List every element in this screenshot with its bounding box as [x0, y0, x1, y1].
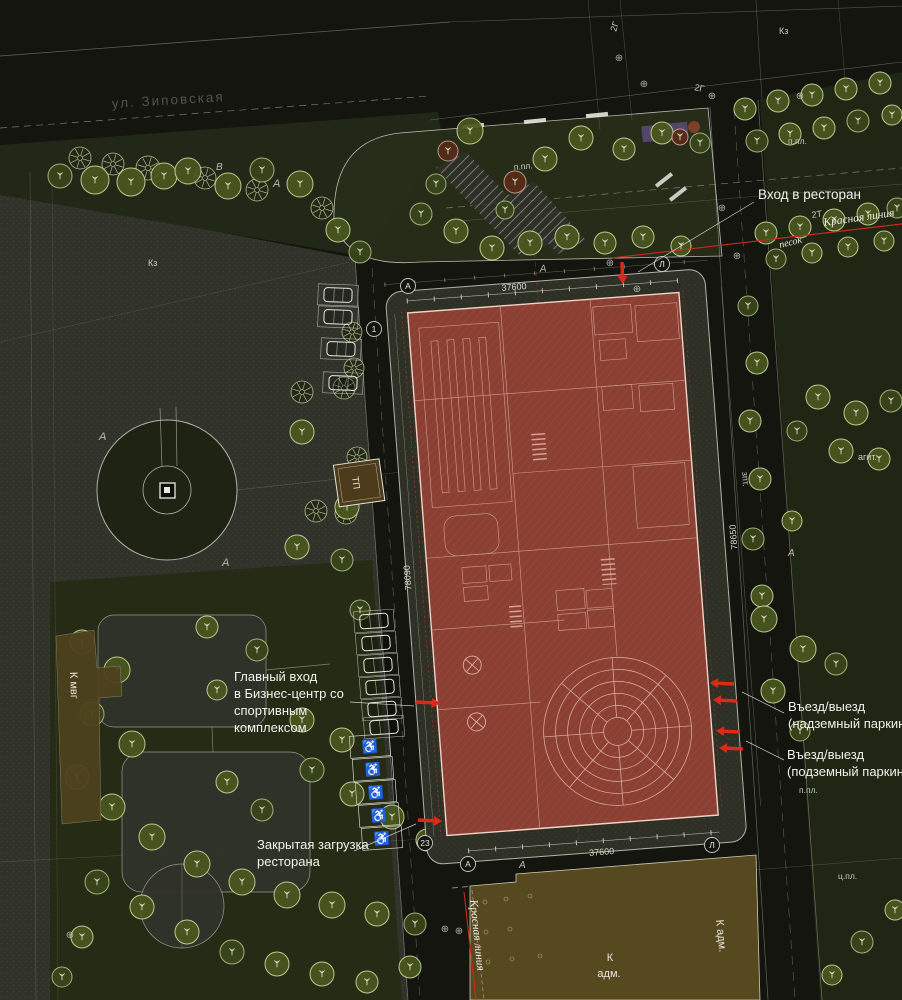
tree-icon: [117, 168, 145, 196]
tree-icon: [742, 528, 764, 550]
tree-icon: [287, 171, 313, 197]
tree-icon: [594, 232, 616, 254]
business-center-building: 37600 37600 78090 78650: [379, 239, 764, 870]
dimension-left: 78090: [402, 565, 414, 591]
tree-icon: [825, 653, 847, 675]
tree-icon: [851, 931, 873, 953]
survey-marker-icon: ⊕: [718, 203, 726, 214]
callout-loading-1: Закрытая загрузка: [257, 837, 369, 852]
svg-text:1: 1: [372, 324, 377, 334]
axis-bubble: А: [401, 279, 416, 294]
callout-exit-underground-2: (подземный паркинг): [787, 764, 902, 779]
tree-icon: [175, 158, 201, 184]
tree-icon: [822, 965, 842, 985]
tree-icon: [838, 237, 858, 257]
axis-bubble: Л: [655, 257, 670, 272]
tree-icon: [99, 794, 125, 820]
tree-icon: [882, 105, 902, 125]
tree-icon: [749, 468, 771, 490]
tree-icon: [274, 882, 300, 908]
svg-text:А: А: [465, 859, 471, 869]
tree-icon: [311, 197, 333, 219]
tree-icon: [69, 147, 91, 169]
tree-icon: [356, 971, 378, 993]
svg-text:Л: Л: [659, 259, 665, 269]
callout-exit-surface-2: (надземный паркинг): [788, 716, 902, 731]
tree-icon: [829, 439, 853, 463]
tree-icon: [555, 225, 579, 249]
map-label: А: [538, 263, 547, 275]
tree-icon: [751, 585, 773, 607]
tree-icon: [761, 679, 785, 703]
tree-icon: [651, 122, 673, 144]
svg-text:♿: ♿: [361, 738, 378, 754]
tree-icon: [310, 962, 334, 986]
map-label: А: [518, 860, 526, 871]
tree-icon: [410, 203, 432, 225]
tree-icon: [847, 110, 869, 132]
svg-text:♿: ♿: [364, 761, 381, 777]
tree-icon: [71, 926, 93, 948]
tree-icon: [184, 851, 210, 877]
tree-icon: [305, 500, 327, 522]
tree-icon: [399, 956, 421, 978]
tree-icon: [844, 401, 868, 425]
map-label: В: [216, 162, 223, 173]
map-label: ц.пл.: [838, 871, 857, 881]
tree-icon: [300, 758, 324, 782]
tree-red-icon: [438, 141, 458, 161]
svg-text:А: А: [405, 281, 411, 291]
tree-icon: [739, 410, 761, 432]
tree-icon: [365, 902, 389, 926]
tree-icon: [81, 166, 109, 194]
tree-icon: [340, 782, 364, 806]
survey-marker-icon: ⊕: [640, 79, 648, 90]
dimension-right: 78650: [727, 524, 739, 550]
tree-icon: [229, 869, 255, 895]
tree-icon: [632, 226, 654, 248]
tree-icon: [246, 639, 268, 661]
tree-icon: [801, 84, 823, 106]
map-label: А: [272, 178, 280, 190]
tree-icon: [119, 731, 145, 757]
survey-marker-icon: ⊕: [455, 926, 463, 937]
axis-bubble: 23: [418, 836, 433, 851]
tree-icon: [285, 535, 309, 559]
site-plan-canvas: 37600 37600 78090 78650 К адм. К адм. К …: [0, 0, 902, 1000]
map-label: 2Т: [811, 209, 823, 220]
callout-exit-underground-1: Въезд/выезд: [787, 747, 864, 762]
callout-loading-2: ресторана: [257, 854, 321, 869]
map-label: Кз: [148, 258, 157, 268]
map-label: ТП: [349, 476, 362, 490]
callout-main-entrance-4: комплексом: [234, 720, 307, 735]
tree-icon: [444, 219, 468, 243]
map-label: п.пл.: [788, 136, 807, 146]
mvg-label: К мвг: [67, 672, 80, 699]
tree-icon: [480, 236, 504, 260]
map-label: А: [787, 548, 795, 559]
tree-icon: [734, 98, 756, 120]
tree-icon: [885, 900, 902, 920]
axis-bubble: А: [461, 857, 476, 872]
map-label: зпт.: [740, 471, 751, 486]
site-plan-drawing: 37600 37600 78090 78650 К адм. К адм. К …: [0, 0, 902, 1000]
tree-icon: [290, 420, 314, 444]
tree-icon: [518, 231, 542, 255]
map-label: п.пл.: [513, 160, 533, 172]
tree-icon: [766, 249, 786, 269]
tree-icon: [869, 72, 891, 94]
tree-icon: [207, 680, 227, 700]
tree-icon: [751, 606, 777, 632]
tree-icon: [782, 511, 802, 531]
tree-icon: [802, 243, 822, 263]
tree-icon: [246, 179, 268, 201]
tree-icon: [139, 824, 165, 850]
svg-text:Л: Л: [709, 840, 715, 850]
tree-icon: [151, 163, 177, 189]
tree-icon: [533, 147, 557, 171]
map-label: п.пл.: [799, 785, 818, 795]
tree-icon: [426, 174, 446, 194]
survey-marker-icon: ⊕: [733, 251, 741, 262]
tree-icon: [251, 799, 273, 821]
tree-icon: [767, 90, 789, 112]
survey-marker-icon: ⊕: [66, 930, 74, 941]
map-label: агит.: [858, 452, 877, 462]
tree-icon: [265, 952, 289, 976]
tree-icon: [690, 133, 710, 153]
tree-red-icon: [504, 171, 526, 193]
tree-icon: [130, 895, 154, 919]
callout-main-entrance-1: Главный вход: [234, 669, 318, 684]
survey-marker-icon: ⊕: [615, 53, 623, 64]
svg-text:♿: ♿: [367, 784, 384, 800]
map-label: Кз: [779, 26, 788, 36]
callout-main-entrance-3: спортивным: [234, 703, 307, 718]
tree-icon: [85, 870, 109, 894]
tree-icon: [880, 390, 902, 412]
tree-icon: [291, 381, 313, 403]
tree-icon: [250, 158, 274, 182]
tree-icon: [874, 231, 894, 251]
tree-icon: [220, 940, 244, 964]
tree-icon: [738, 296, 758, 316]
axis-bubble: Л: [705, 838, 720, 853]
tree-icon: [806, 385, 830, 409]
tree-icon: [344, 358, 364, 378]
tree-icon: [746, 130, 768, 152]
svg-text:♿: ♿: [370, 807, 387, 823]
dimension-top: 37600: [501, 281, 527, 293]
tree-icon: [215, 173, 241, 199]
tree-icon: [48, 164, 72, 188]
tree-icon: [787, 421, 807, 441]
tree-icon: [569, 126, 593, 150]
map-label: А: [98, 431, 106, 443]
svg-text:23: 23: [420, 838, 430, 848]
tree-icon: [52, 967, 72, 987]
axis-bubble: 1: [367, 322, 382, 337]
tree-icon: [404, 913, 426, 935]
map-label: А: [221, 557, 229, 569]
tree-icon: [331, 549, 353, 571]
tree-icon: [746, 352, 768, 374]
tree-icon: [496, 201, 514, 219]
tree-icon: [175, 920, 199, 944]
tree-icon: [349, 241, 371, 263]
survey-marker-icon: ⊕: [796, 91, 804, 102]
tree-icon: [216, 771, 238, 793]
tree-icon: [813, 117, 835, 139]
callout-restaurant-entrance: Вход в ресторан: [758, 187, 861, 202]
tree-icon: [457, 118, 483, 144]
tree-icon: [196, 616, 218, 638]
tree-icon: [790, 636, 816, 662]
dimension-bottom: 37600: [589, 846, 615, 858]
tree-icon: [835, 78, 857, 100]
survey-marker-icon: ⊕: [633, 284, 641, 295]
callout-main-entrance-2: в Бизнес-центр со: [234, 686, 344, 701]
tree-icon: [613, 138, 635, 160]
tree-icon: [319, 892, 345, 918]
tree-red-icon: [672, 129, 688, 145]
survey-marker-icon: ⊕: [606, 258, 614, 269]
admin-label-line1: К: [607, 952, 614, 964]
survey-marker-icon: ⊕: [441, 924, 449, 935]
callout-exit-surface-1: Въезд/выезд: [788, 699, 865, 714]
tree-icon: [326, 218, 350, 242]
survey-marker-icon: ⊕: [708, 91, 716, 102]
admin-label-line2: адм.: [597, 968, 620, 980]
